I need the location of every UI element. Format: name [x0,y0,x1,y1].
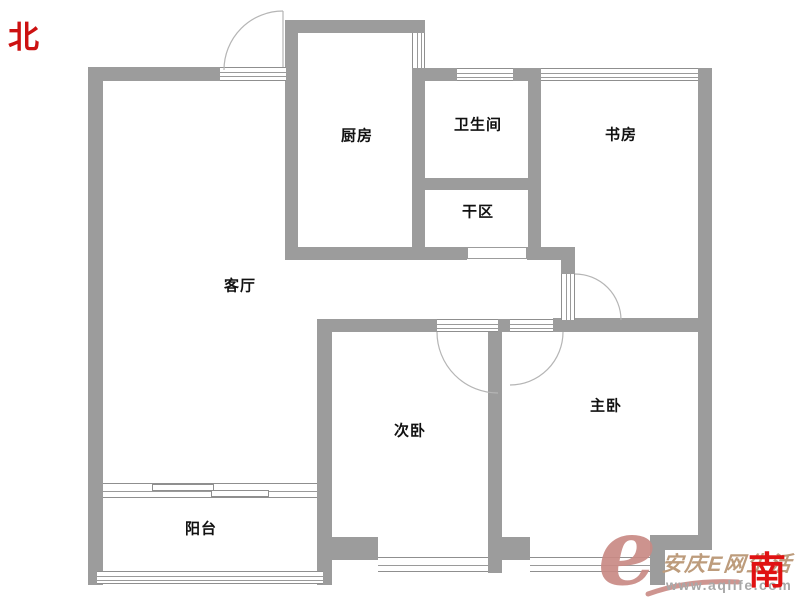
floor-plan: 厨房 卫生间 书房 干区 客厅 次卧 主卧 阳台 北 南 e 安庆E网生活 ww… [0,0,800,600]
compass-south-label: 南 [748,540,786,595]
door-arcs-layer [0,0,800,600]
sliding-panel-right [211,490,269,497]
masterbed-door-arc [510,332,563,385]
study-door-arc [575,274,621,320]
sliding-panel-left [152,484,214,491]
watermark-logo: e [598,506,657,598]
entry-door-arc [224,11,283,70]
secondbed-door-arc [437,332,498,393]
